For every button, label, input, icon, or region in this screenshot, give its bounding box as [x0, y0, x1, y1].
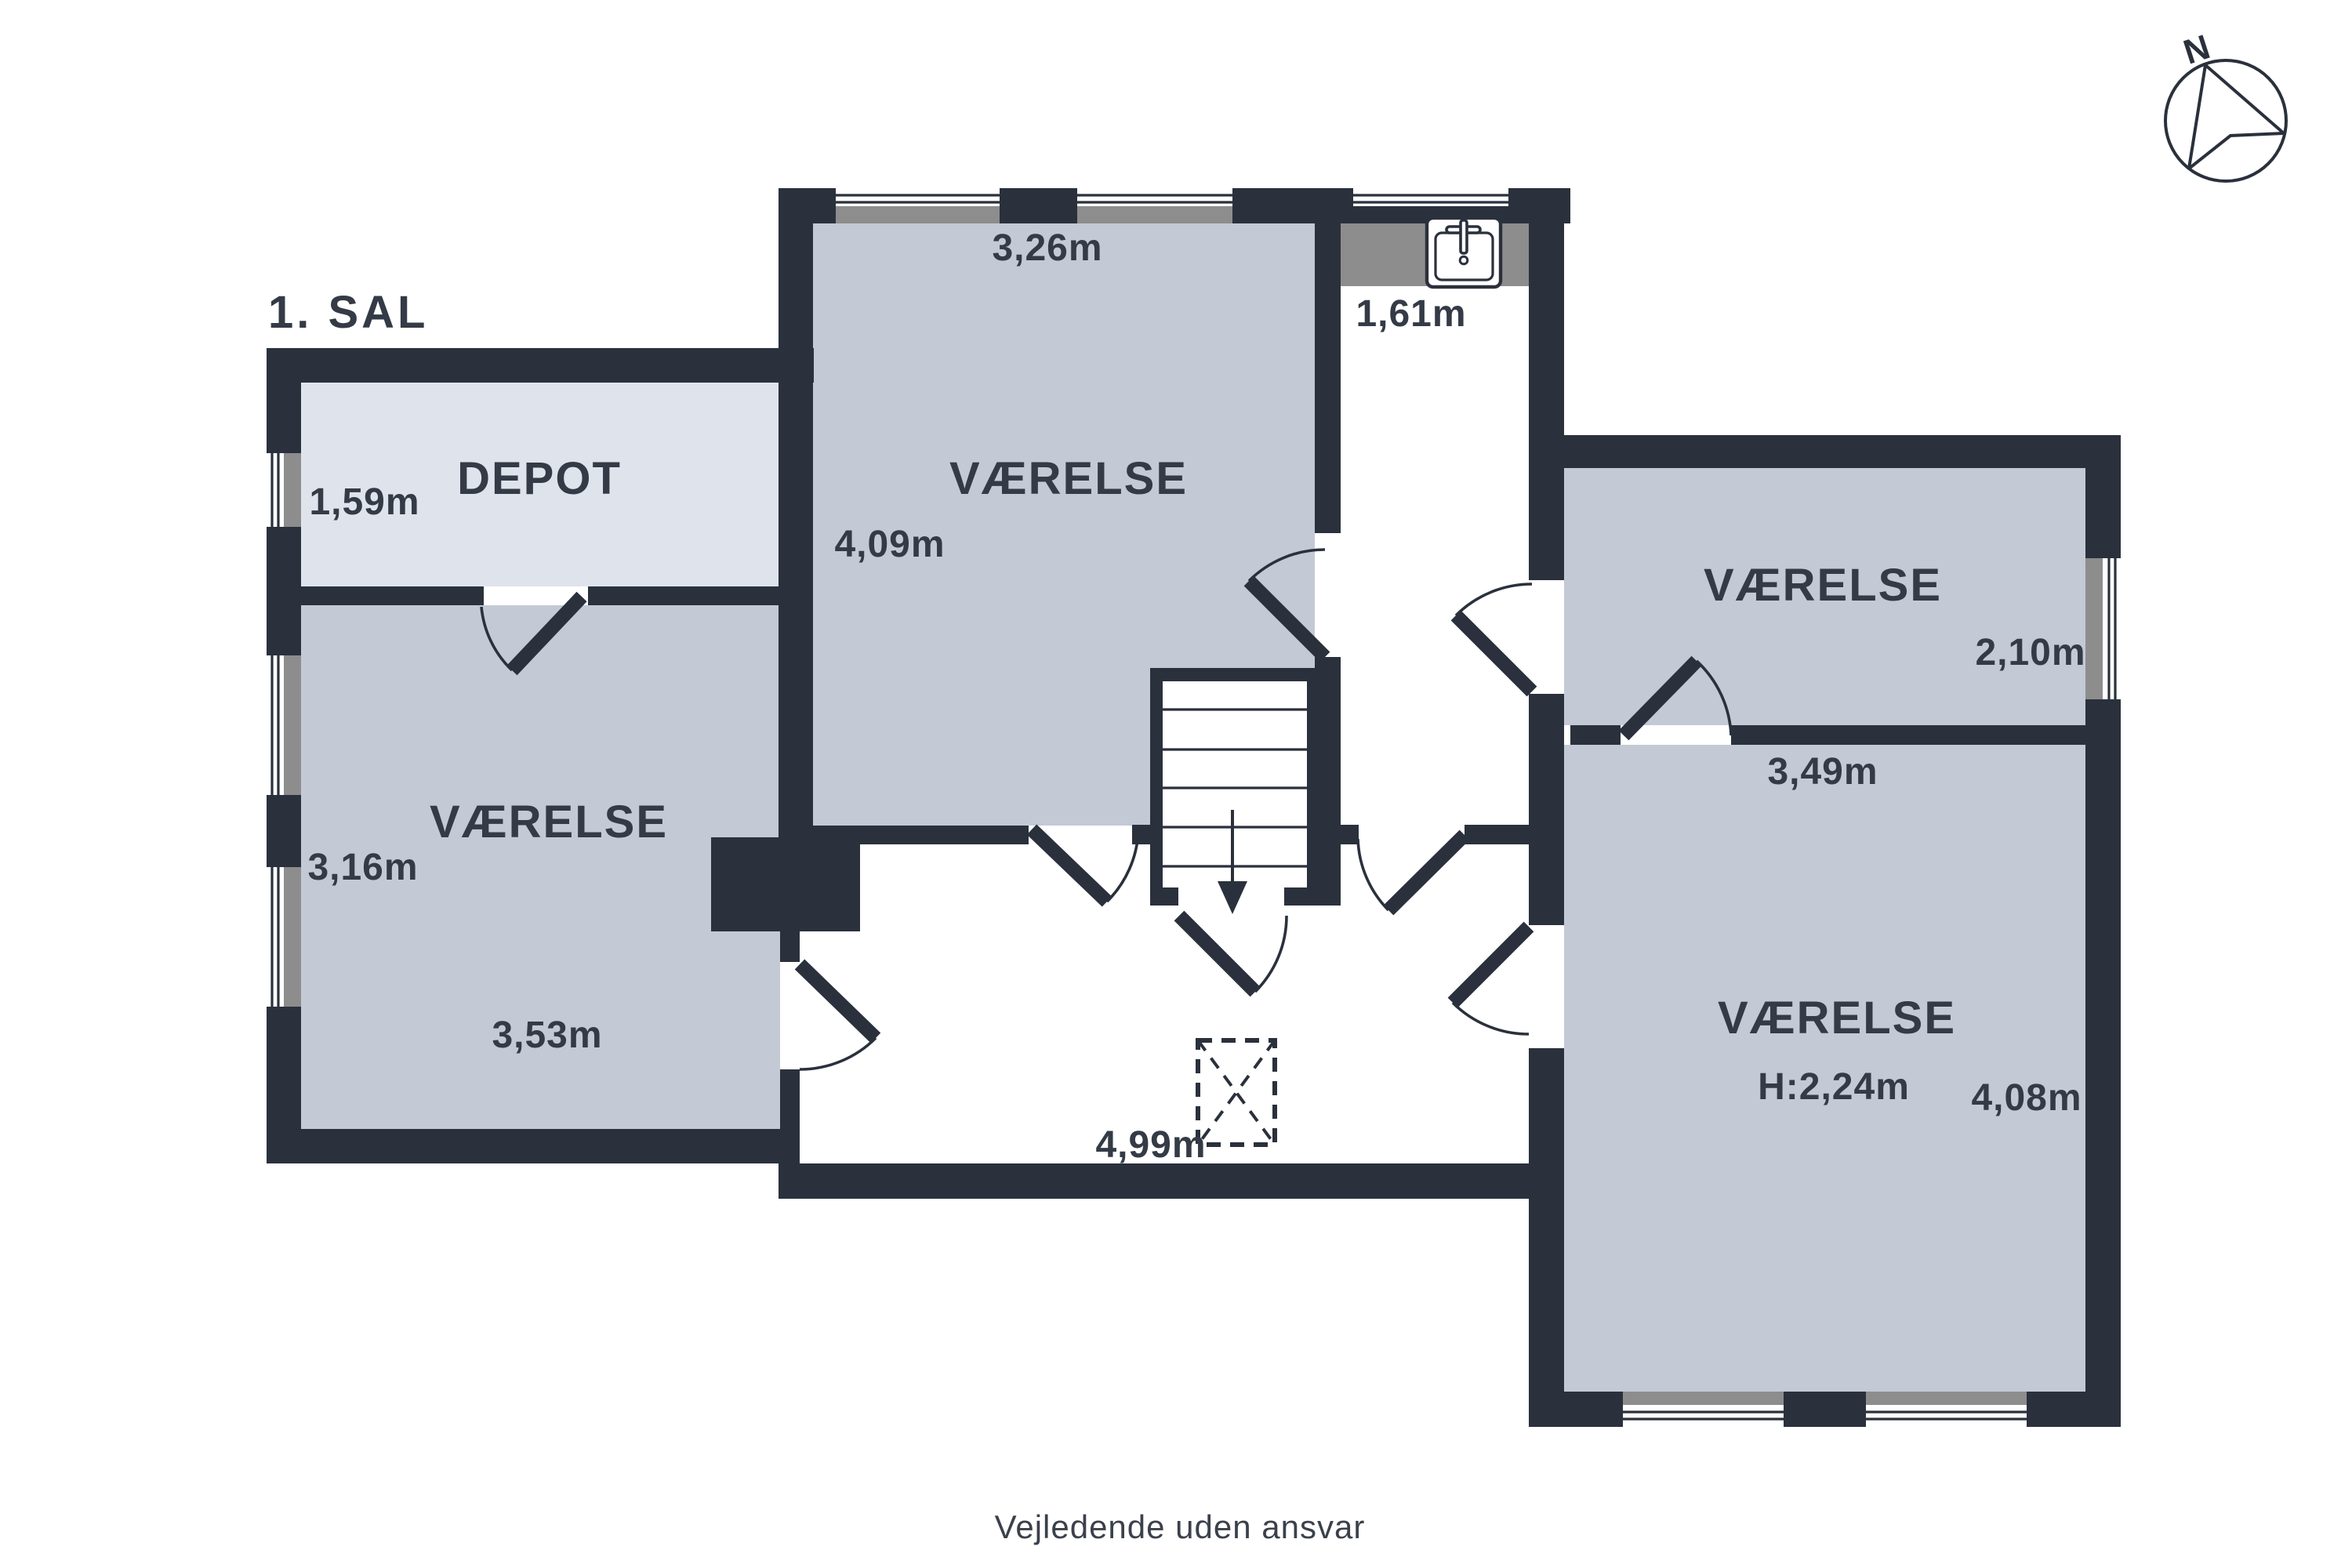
- floor-title: 1. SAL: [268, 287, 429, 338]
- wall-center-right-upper: [1529, 188, 1564, 580]
- dim-left-width: 3,16m: [307, 847, 418, 888]
- stairs-wall-top: [1150, 668, 1321, 681]
- dim-center-top: 3,26m: [992, 227, 1102, 269]
- room-label-top-right: VÆRELSE: [1704, 560, 1942, 611]
- window-top-right-room: [2085, 558, 2121, 699]
- window-center-top-2: [1077, 188, 1232, 223]
- dim-bottom-right-height: H:2,24m: [1758, 1066, 1910, 1108]
- stairs-wall-right: [1307, 668, 1341, 906]
- window-left-room-1: [267, 655, 301, 795]
- wall-hall-divider-stub-c: [1465, 825, 1532, 844]
- room-label-left: VÆRELSE: [430, 797, 668, 848]
- window-sink-nook-top: [1353, 188, 1508, 206]
- wall-center-bottom: [779, 1163, 1564, 1199]
- window-left-room-2: [267, 867, 301, 1007]
- dim-bottom-right-side: 4,08m: [1971, 1077, 2082, 1119]
- wall-right-divider-right: [1731, 725, 2085, 745]
- dim-top-right-bottom: 3,49m: [1767, 751, 1878, 793]
- stairs: [1150, 668, 1341, 914]
- wall-left-block-top: [267, 348, 814, 383]
- window-depot-left: [267, 453, 301, 527]
- dim-depot-width: 1,59m: [309, 481, 419, 523]
- dim-sink-nook: 1,61m: [1356, 293, 1466, 335]
- wall-center-right-mid: [1529, 694, 1564, 925]
- window-bottom-right-1: [1623, 1392, 1784, 1427]
- wall-right-divider-left: [1570, 725, 1621, 745]
- room-label-center: VÆRELSE: [949, 453, 1188, 504]
- wall-center-left: [779, 188, 813, 837]
- stairs-floor: [1163, 681, 1307, 906]
- wall-hall-divider-stub-a: [1132, 825, 1151, 844]
- wall-center-right-lower: [1529, 1048, 1564, 1163]
- floor-plan: N 1. SAL DEPOT 1,59m VÆRELSE 3,16m 3,53m…: [0, 0, 2352, 1568]
- stairs-stub-left: [1163, 887, 1178, 906]
- dim-center-side: 4,09m: [834, 524, 945, 565]
- stairs-stub-right: [1284, 887, 1307, 906]
- stairs-wall-left: [1150, 668, 1163, 906]
- wall-left-room-right-lower: [780, 1069, 800, 1163]
- footer-disclaimer: Vejledende uden ansvar: [995, 1508, 1366, 1545]
- chimney-block: [711, 837, 860, 931]
- wall-left-block-bottom: [267, 1129, 800, 1163]
- room-label-bottom-right: VÆRELSE: [1718, 993, 1956, 1044]
- window-bottom-right-2: [1866, 1392, 2027, 1427]
- wall-right-block-left-lower: [1529, 1163, 1564, 1427]
- dim-left-length: 3,53m: [492, 1014, 602, 1056]
- wall-right-block-top: [1529, 435, 2121, 468]
- room-label-depot: DEPOT: [457, 453, 622, 504]
- window-center-top-1: [836, 188, 1000, 223]
- dim-hall-width: 4,99m: [1095, 1124, 1206, 1166]
- dim-top-right-side: 2,10m: [1975, 632, 2085, 673]
- wall-center-room-right-upper: [1315, 223, 1341, 533]
- sink-icon: [1427, 218, 1501, 287]
- wall-depot-divider-right: [588, 586, 779, 605]
- wall-depot-divider-left: [301, 586, 484, 605]
